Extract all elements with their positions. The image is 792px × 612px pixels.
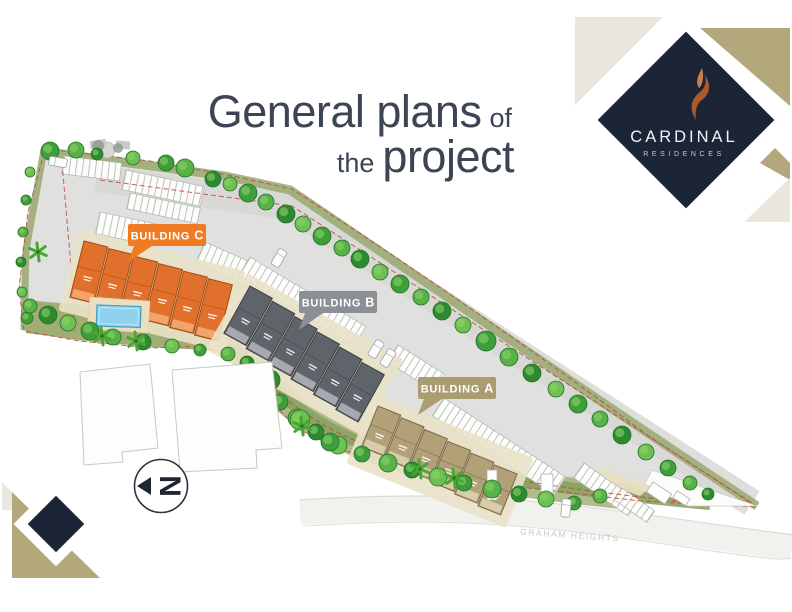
north-compass-icon: N [135, 460, 188, 513]
site-plan [16, 139, 757, 528]
svg-text:N: N [155, 475, 188, 497]
brand-subtitle: RESIDENCES [643, 151, 725, 158]
logo-beige-sliver [744, 178, 790, 222]
neighbor-building [80, 364, 158, 465]
page-title: General plansof theproject [208, 86, 515, 182]
logo: CARDINAL RESIDENCES [575, 17, 790, 222]
svg-text:theproject: theproject [337, 131, 515, 182]
logo-tan-sliver [760, 148, 790, 180]
neighbor-building [172, 362, 282, 472]
brand-name: CARDINAL [630, 128, 737, 146]
swimming-pool [96, 305, 141, 328]
svg-text:General plansof: General plansof [208, 86, 513, 137]
corner-decoration [2, 482, 100, 578]
car [561, 499, 572, 518]
neighbor-buildings [80, 362, 282, 472]
slide: GRAHAM HEIGHTS [0, 0, 792, 612]
